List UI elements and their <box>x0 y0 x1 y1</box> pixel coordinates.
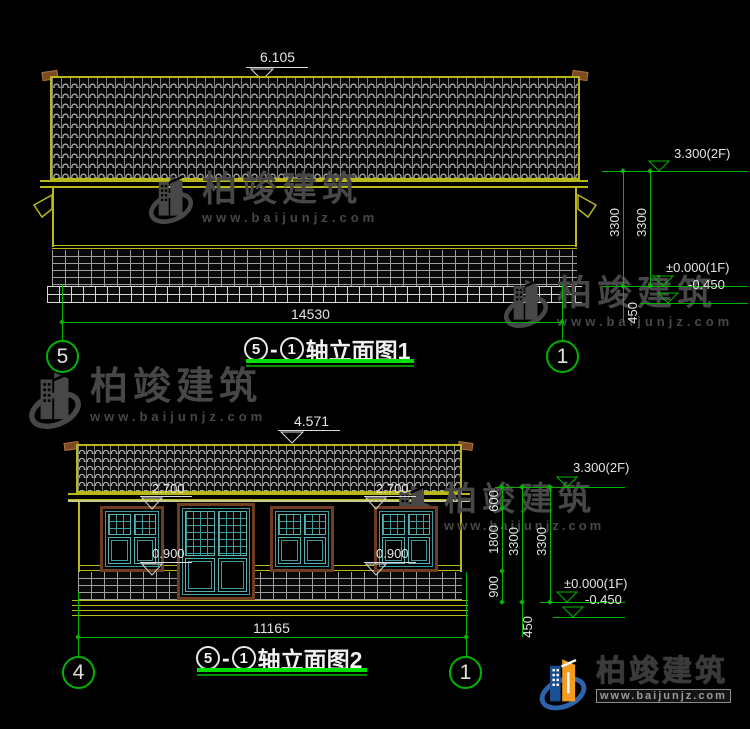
dimension-line-width-1 <box>62 322 562 323</box>
floor-height-label: 3300 <box>608 208 621 237</box>
floor-height-label: 3300 <box>507 527 520 556</box>
level-triangle <box>562 606 584 618</box>
dim-tick <box>75 634 81 640</box>
entry-door <box>177 503 255 600</box>
eave-offset-label: 600 <box>487 490 500 512</box>
level-triangle <box>652 275 674 287</box>
watermark-company: 柏竣建筑 <box>202 172 378 209</box>
watermark-logo-icon <box>28 368 82 436</box>
title-axis-a: 5 <box>244 337 268 361</box>
dim-triangle <box>365 563 387 576</box>
plinth-steps-2 <box>72 600 468 616</box>
axis-bubble-4: 4 <box>62 656 95 689</box>
brick-band-2 <box>78 572 462 600</box>
base-dim-label-2: 450 <box>521 616 534 638</box>
title-underline-2 <box>246 365 414 367</box>
dim-triangle <box>141 563 163 576</box>
watermark-logo-icon <box>148 172 194 230</box>
brick-band-1 <box>52 250 577 286</box>
title-underline <box>197 668 367 672</box>
lintel-dim-right: 2.700 <box>376 482 409 495</box>
dim-triangle <box>365 497 387 510</box>
plinth-band-1 <box>47 286 582 303</box>
watermark-website: www.baijunjz.com <box>90 409 266 424</box>
height-chain-line <box>650 171 651 286</box>
height-chain-line <box>550 487 551 602</box>
level-minus-label-2: -0.450 <box>585 593 622 606</box>
watermark-website: www.baijunjz.com <box>557 314 733 329</box>
ridge-level-label-1: 6.105 <box>260 50 295 64</box>
watermark-left: 柏竣建筑 www.baijunjz.com <box>28 368 266 436</box>
window-2 <box>270 506 334 572</box>
ridge-level-triangle-2 <box>280 431 304 444</box>
level-triangle <box>556 476 578 488</box>
height-chain-line <box>522 487 523 637</box>
level-2f-label-1: 3.300(2F) <box>674 147 730 160</box>
width-dim-label-2: 11165 <box>253 621 290 635</box>
level-triangle <box>657 292 679 304</box>
height-chain-line <box>623 171 624 322</box>
extension-line <box>78 592 79 656</box>
dim-tick <box>519 599 525 605</box>
dim-tick <box>499 568 505 574</box>
level-1f-label-2: ±0.000(1F) <box>564 577 628 590</box>
width-dim-label-1: 14530 <box>291 307 330 321</box>
extension-line <box>466 572 467 656</box>
brand-company: 柏竣建筑 <box>596 656 731 688</box>
gutter-bracket-left-1 <box>30 191 54 219</box>
title-underline-2 <box>197 674 367 676</box>
dim-tick <box>499 599 505 605</box>
level-triangle <box>556 591 578 603</box>
brand-website: www.baijunjz.com <box>596 689 731 703</box>
watermark-center: 柏竣建筑 www.baijunjz.com <box>148 172 378 230</box>
brand-logo-icon <box>538 656 588 716</box>
axis-bubble-1b: 1 <box>449 656 482 689</box>
floor-height-label: 3300 <box>635 208 648 237</box>
title-axis-b: 1 <box>280 337 304 361</box>
string-course-1 <box>52 245 577 249</box>
floor-height-label: 3300 <box>535 527 548 556</box>
brand-logo: 柏竣建筑 www.baijunjz.com <box>538 656 731 716</box>
roof-tile-hatch-1 <box>50 76 580 180</box>
level-1f-label-1: ±0.000(1F) <box>666 261 730 274</box>
dimension-line-width-2 <box>78 637 466 638</box>
title-axis-a: 5 <box>196 646 220 670</box>
window-height-label: 1800 <box>487 525 500 554</box>
cad-canvas: 6.105 柏竣建筑 www.baijunjz.com <box>0 0 750 729</box>
axis-bubble-1: 1 <box>546 340 579 373</box>
lintel-dim-left: 2.700 <box>152 482 185 495</box>
gutter-bracket-right-1 <box>576 191 600 219</box>
sill-dim-left: 0.900 <box>152 547 185 560</box>
level-minus-label-1: -0.450 <box>688 278 725 291</box>
extension-line <box>562 284 563 341</box>
sill-dim-right: 0.900 <box>376 547 409 560</box>
title-underline <box>246 359 414 363</box>
base-dim-label-1: 450 <box>626 302 639 324</box>
level-1f-line-1 <box>602 286 748 287</box>
sill-height-label: 900 <box>487 576 500 598</box>
level-2f-label-2: 3.300(2F) <box>573 461 629 474</box>
title-axis-b: 1 <box>232 646 256 670</box>
dim-tick <box>59 319 65 325</box>
watermark-website: www.baijunjz.com <box>444 518 604 533</box>
watermark-logo-icon <box>503 276 549 334</box>
ridge-level-label-2: 4.571 <box>294 414 329 428</box>
height-chain-line <box>502 487 503 602</box>
dim-tick <box>463 634 469 640</box>
watermark-company: 柏竣建筑 <box>90 368 266 408</box>
dim-triangle <box>141 497 163 510</box>
extension-line <box>62 284 63 341</box>
dim-tick <box>620 168 626 174</box>
watermark-website: www.baijunjz.com <box>202 210 378 225</box>
